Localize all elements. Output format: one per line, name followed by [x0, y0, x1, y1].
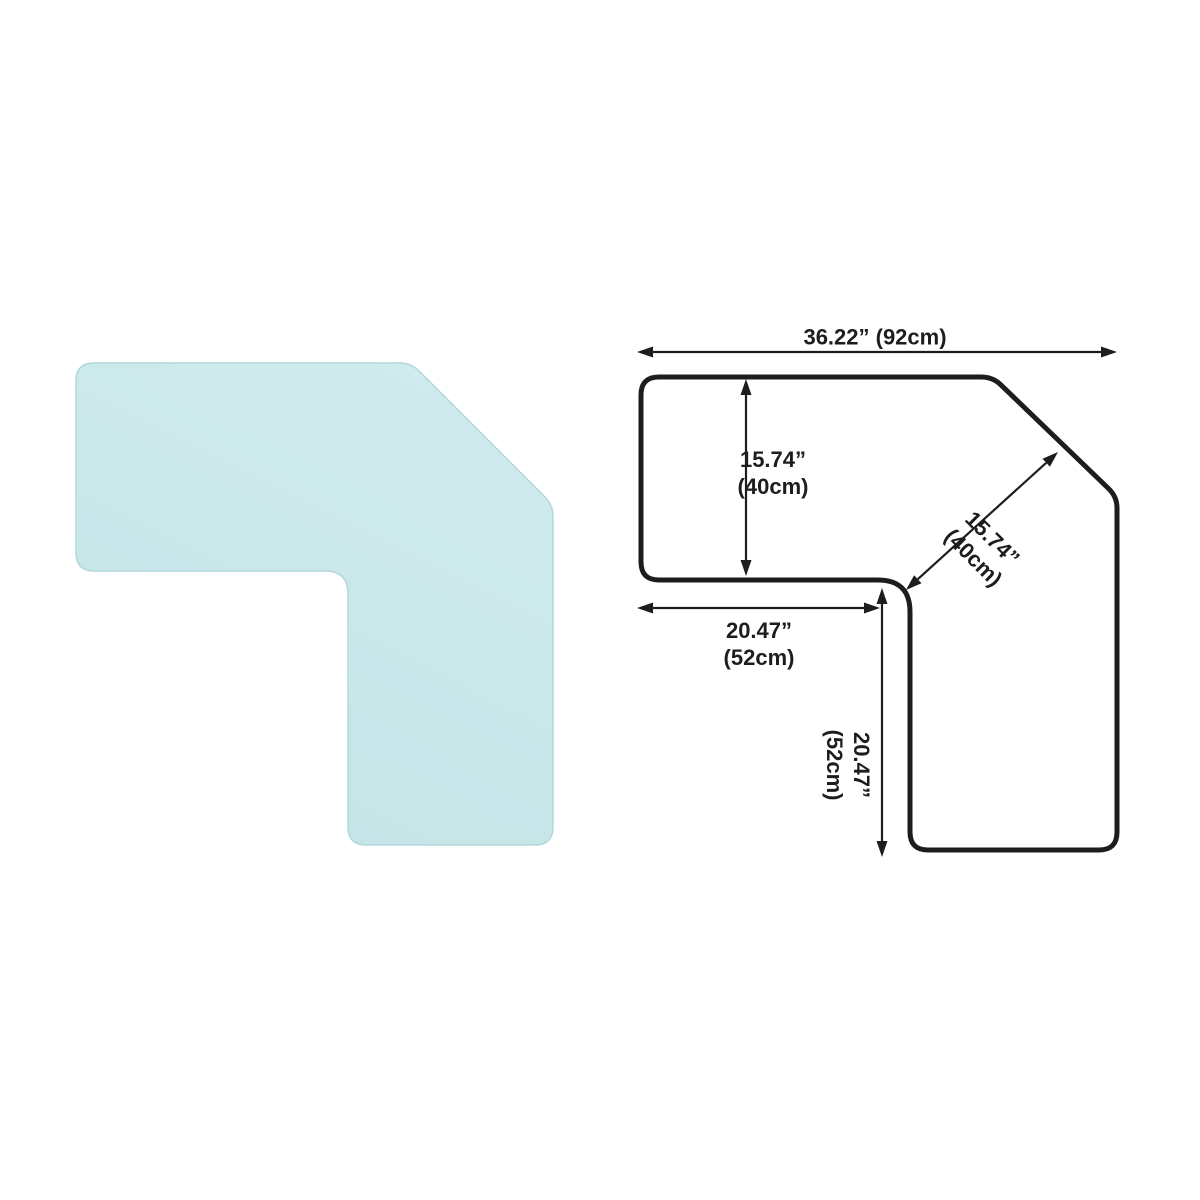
corner-mat-shape	[76, 363, 553, 845]
left-arm-length-label: 20.47” (52cm)	[724, 617, 795, 671]
arrowhead-left-icon	[637, 603, 653, 614]
arrowhead-up-icon	[741, 379, 752, 395]
right-arm-length-label: 20.47” (52cm)	[821, 730, 875, 801]
arrowhead-up-icon	[877, 588, 888, 604]
left-arm-length-arrow	[637, 603, 880, 614]
right-arm-length-arrow	[877, 588, 888, 857]
dimension-outline-shape	[641, 377, 1117, 850]
total-width-label: 36.22” (92cm)	[803, 324, 946, 351]
arrowhead-right-icon	[1101, 347, 1117, 358]
arrowhead-left-icon	[637, 347, 653, 358]
product-dimension-image: 36.22” (92cm) 15.74” (40cm) 15.74” (40cm…	[0, 0, 1200, 1200]
arrowhead-down-icon	[877, 841, 888, 857]
arrowhead-down-icon	[741, 560, 752, 576]
left-arm-height-label: 15.74” (40cm)	[738, 446, 809, 500]
arrowhead-right-icon	[864, 603, 880, 614]
diagram-svg	[0, 0, 1200, 1200]
